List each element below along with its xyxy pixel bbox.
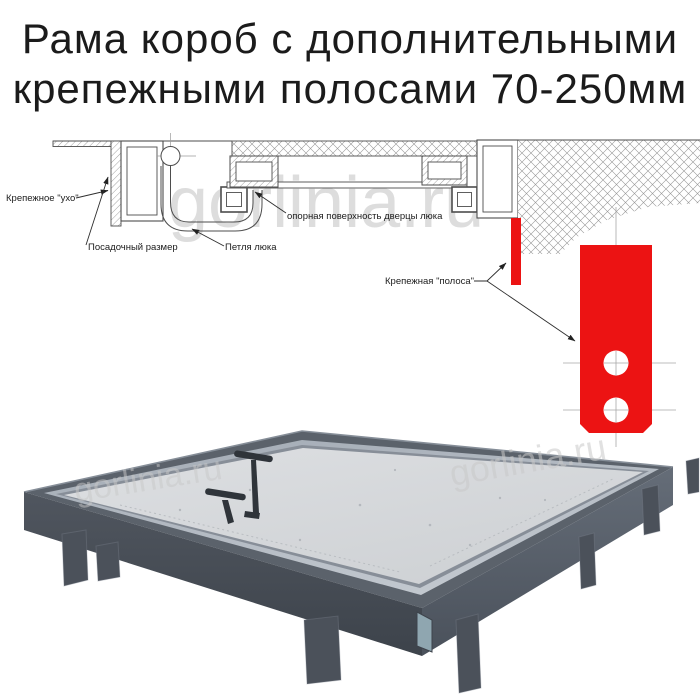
- leg: [96, 542, 120, 581]
- ceiling-strip: [53, 141, 112, 147]
- mounting-strip-small: [511, 218, 521, 285]
- label-door-support: опорная поверхность дверцы люка: [287, 211, 443, 222]
- leg: [579, 533, 596, 589]
- left-frame-profile: [121, 141, 163, 221]
- label-hatch-hinge: Петля люка: [225, 242, 277, 253]
- product-photo: gorlinia.ru gorlinia.ru: [24, 426, 699, 693]
- leg: [456, 614, 481, 693]
- label-mounting-strip: Крепежная "полоса": [385, 276, 474, 287]
- mounting-strip-detail: [563, 245, 676, 447]
- hinge-pivot: [161, 147, 180, 166]
- hinge-bracket-left: [221, 187, 247, 212]
- door-insert-right: [422, 156, 467, 185]
- label-seating-size: Посадочный размер: [88, 242, 178, 253]
- door-fill-strip: [232, 141, 478, 156]
- mounting-ear-strip: [111, 141, 121, 226]
- leg: [304, 616, 341, 684]
- right-frame-profile: [477, 140, 518, 218]
- leg: [62, 530, 88, 586]
- hinge-bracket-right: [452, 187, 477, 212]
- leg: [686, 458, 699, 494]
- leg: [642, 485, 660, 535]
- wall-hatch: [518, 140, 700, 254]
- door-insert-left: [230, 156, 278, 187]
- label-mounting-ear: Крепежное "ухо": [6, 193, 79, 204]
- product-image: gorlinia.ru: [0, 0, 700, 700]
